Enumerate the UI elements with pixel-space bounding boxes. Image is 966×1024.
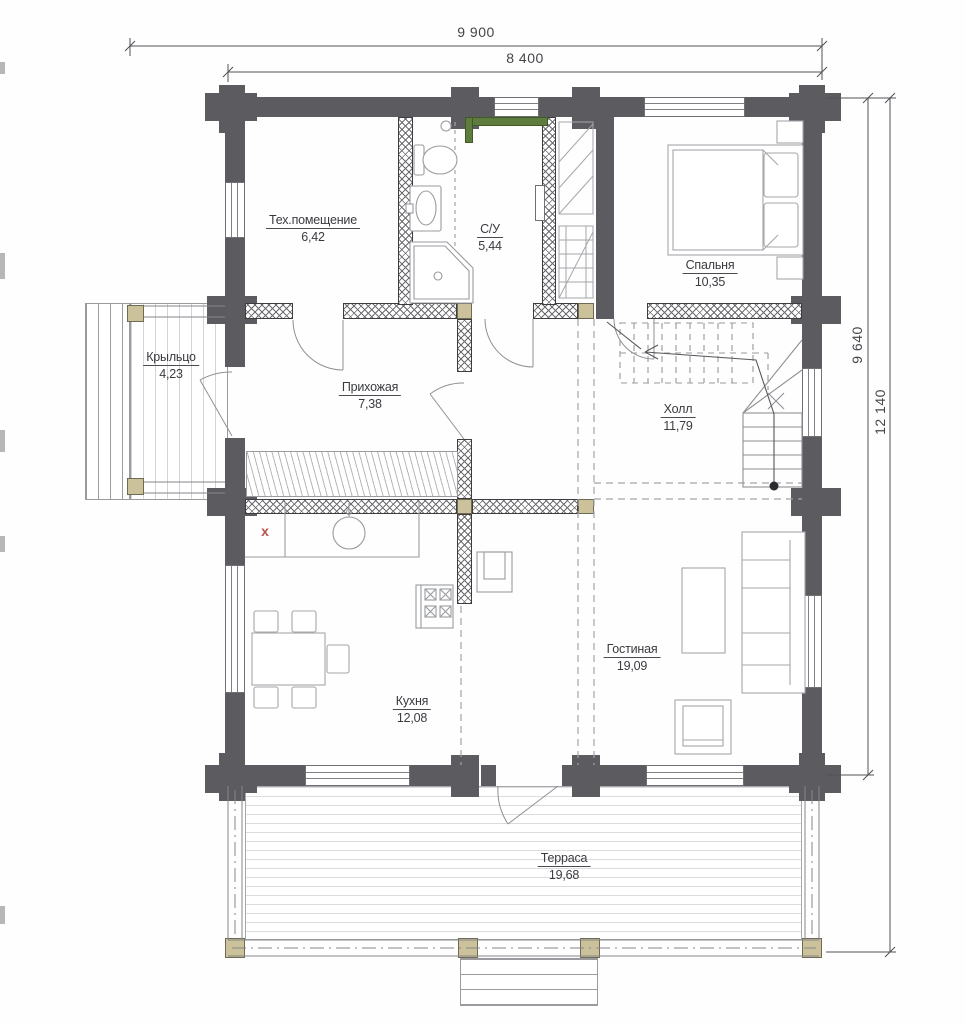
- chair: [254, 611, 278, 632]
- interior-wall: [647, 303, 802, 319]
- interior-wall: [457, 514, 472, 604]
- outer-wall-left: [225, 438, 245, 490]
- room-name: Прихожая: [339, 379, 401, 396]
- armchair-seat: [683, 706, 723, 746]
- window: [644, 97, 745, 117]
- window: [225, 182, 245, 238]
- dim-depth-main: 9 640: [849, 326, 865, 364]
- niche-ladder: [559, 122, 593, 298]
- dim-width-main: 8 400: [506, 50, 544, 66]
- room-label-terrace: Терраса 19,68: [538, 850, 591, 884]
- shower-tray-inner: [414, 246, 469, 299]
- window: [802, 368, 822, 437]
- nightstand: [777, 257, 803, 279]
- room-label-hallway: Прихожая 7,38: [339, 379, 401, 413]
- terrace-steps: [460, 958, 598, 1006]
- terrace-post: [802, 938, 822, 958]
- terrace-deck: [245, 786, 802, 940]
- chair: [254, 687, 278, 708]
- door-arc: [430, 383, 464, 394]
- shower-drain: [434, 272, 442, 280]
- dining-set: [252, 611, 349, 708]
- sofa: [742, 532, 805, 693]
- room-label-bedroom: Спальня 10,35: [683, 257, 738, 291]
- outer-wall-right: [802, 117, 822, 298]
- room-name: Тех.помещение: [266, 212, 360, 229]
- wall-post: [578, 499, 594, 514]
- interior-wall: [245, 303, 293, 319]
- blanket-fold: [763, 150, 778, 165]
- interior-wall: [472, 499, 578, 514]
- interior-wall: [457, 319, 472, 372]
- coffee-table: [682, 568, 725, 653]
- room-name: С/У: [477, 221, 503, 238]
- stairs-lower-flight: [743, 340, 802, 487]
- room-name: Гостиная: [604, 641, 661, 658]
- outer-wall-right: [802, 514, 822, 595]
- outer-wall-left: [225, 319, 245, 367]
- window: [494, 97, 539, 117]
- floor-plan: Тех.помещение 6,42 С/У 5,44 Спальня 10,3…: [0, 0, 966, 1024]
- room-area: 19,09: [604, 658, 661, 674]
- room-name: Кухня: [393, 693, 431, 710]
- interior-wall: [343, 303, 457, 319]
- chair: [292, 687, 316, 708]
- log-junction: [791, 488, 841, 516]
- terrace-post: [225, 938, 245, 958]
- fireplace-inner: [484, 552, 505, 579]
- room-area: 11,79: [661, 418, 696, 434]
- outer-wall-bottom: [600, 765, 646, 786]
- room-area: 4,23: [143, 366, 199, 382]
- bed-mattress: [673, 150, 763, 250]
- room-area: 10,35: [683, 274, 738, 290]
- outer-wall-top: [600, 97, 644, 117]
- porch-deck: [130, 303, 228, 500]
- edge-artifact: [0, 536, 5, 552]
- bathroom-fixtures: [406, 121, 473, 303]
- blanket-fold: [763, 235, 778, 250]
- log-stub: [572, 755, 600, 797]
- outer-wall-right: [802, 437, 822, 490]
- sink-basin: [416, 191, 436, 225]
- wall-post: [457, 499, 472, 514]
- room-name: Спальня: [683, 257, 738, 274]
- porch-steps: [85, 303, 130, 500]
- dim-depth-overall: 12 140: [872, 389, 888, 435]
- log-crossing: [205, 765, 257, 793]
- log-crossing: [205, 93, 257, 121]
- armchair: [675, 700, 731, 754]
- boiler-mark: x: [261, 523, 269, 539]
- room-label-bathroom: С/У 5,44: [477, 221, 503, 255]
- door-arc: [293, 320, 343, 370]
- log-stub: [572, 87, 600, 129]
- pillow: [764, 203, 798, 247]
- room-label-living: Гостиная 19,09: [604, 641, 661, 675]
- porch-post: [127, 305, 144, 322]
- room-area: 6,42: [266, 229, 360, 245]
- toilet-bowl: [423, 146, 457, 174]
- bed: [668, 145, 803, 255]
- pocket-door: [535, 185, 545, 221]
- fireplace-unit: [477, 552, 512, 592]
- stairs-start-dot: [770, 482, 779, 491]
- door-leaf: [430, 394, 464, 439]
- edge-artifact: [0, 906, 5, 924]
- room-label-porch: Крыльцо 4,23: [143, 349, 199, 383]
- outer-wall-bottom: [410, 765, 453, 786]
- stove: [416, 585, 453, 628]
- interior-wall: [245, 499, 457, 514]
- window: [305, 765, 410, 786]
- outer-wall-left: [225, 514, 245, 565]
- staircase: [607, 322, 802, 491]
- bedroom-furniture: [668, 121, 803, 279]
- room-area: 19,68: [538, 867, 591, 883]
- room-label-kitchen: Кухня 12,08: [393, 693, 431, 727]
- log-stub: [451, 755, 479, 797]
- pillow: [764, 153, 798, 197]
- room-name: Холл: [661, 401, 696, 418]
- wardrobe: [246, 451, 458, 497]
- interior-wall: [533, 303, 578, 319]
- outer-wall-bottom: [481, 765, 496, 786]
- log-crossing: [789, 765, 841, 793]
- outer-wall-top: [539, 97, 572, 117]
- terrace-post: [580, 938, 600, 958]
- kitchen-sink: [333, 517, 365, 549]
- room-name: Крыльцо: [143, 349, 199, 366]
- dim-width-overall: 9 900: [457, 24, 495, 40]
- toilet-tank: [414, 145, 424, 175]
- log-crossing: [789, 93, 841, 121]
- interior-wall: [457, 439, 472, 499]
- edge-artifact: [0, 430, 5, 452]
- shower-tray: [410, 242, 473, 303]
- room-area: 7,38: [339, 396, 401, 412]
- living-furniture: [675, 532, 805, 754]
- terrace-post: [458, 938, 478, 958]
- room-area: 12,08: [393, 710, 431, 726]
- room-label-hall: Холл 11,79: [661, 401, 696, 435]
- green-partition: [465, 117, 548, 126]
- stairs-upper-flight: [620, 323, 768, 390]
- wall-post: [457, 303, 472, 319]
- sink-vanity: [410, 186, 441, 231]
- bathroom-wall-left: [398, 117, 413, 305]
- outer-wall-top: [245, 97, 451, 117]
- chair: [292, 611, 316, 632]
- porch-post: [127, 478, 144, 495]
- room-label-tech: Тех.помещение 6,42: [266, 212, 360, 246]
- door-arc: [614, 319, 654, 359]
- chair: [327, 645, 349, 673]
- bedroom-wall: [596, 117, 614, 319]
- door-arc: [485, 319, 533, 367]
- edge-artifact: [0, 253, 5, 279]
- dining-table: [252, 633, 325, 685]
- vent-symbol: [441, 121, 451, 131]
- outer-wall-left: [225, 238, 245, 298]
- wall-post: [578, 303, 594, 319]
- outer-wall-right: [802, 319, 822, 368]
- door-swings: [200, 319, 654, 824]
- window: [802, 595, 822, 688]
- room-name: Терраса: [538, 850, 591, 867]
- green-partition: [465, 117, 473, 143]
- window: [225, 565, 245, 693]
- room-area: 5,44: [477, 238, 503, 254]
- outer-wall-top: [479, 97, 494, 117]
- edge-artifact: [0, 62, 5, 74]
- window: [646, 765, 744, 786]
